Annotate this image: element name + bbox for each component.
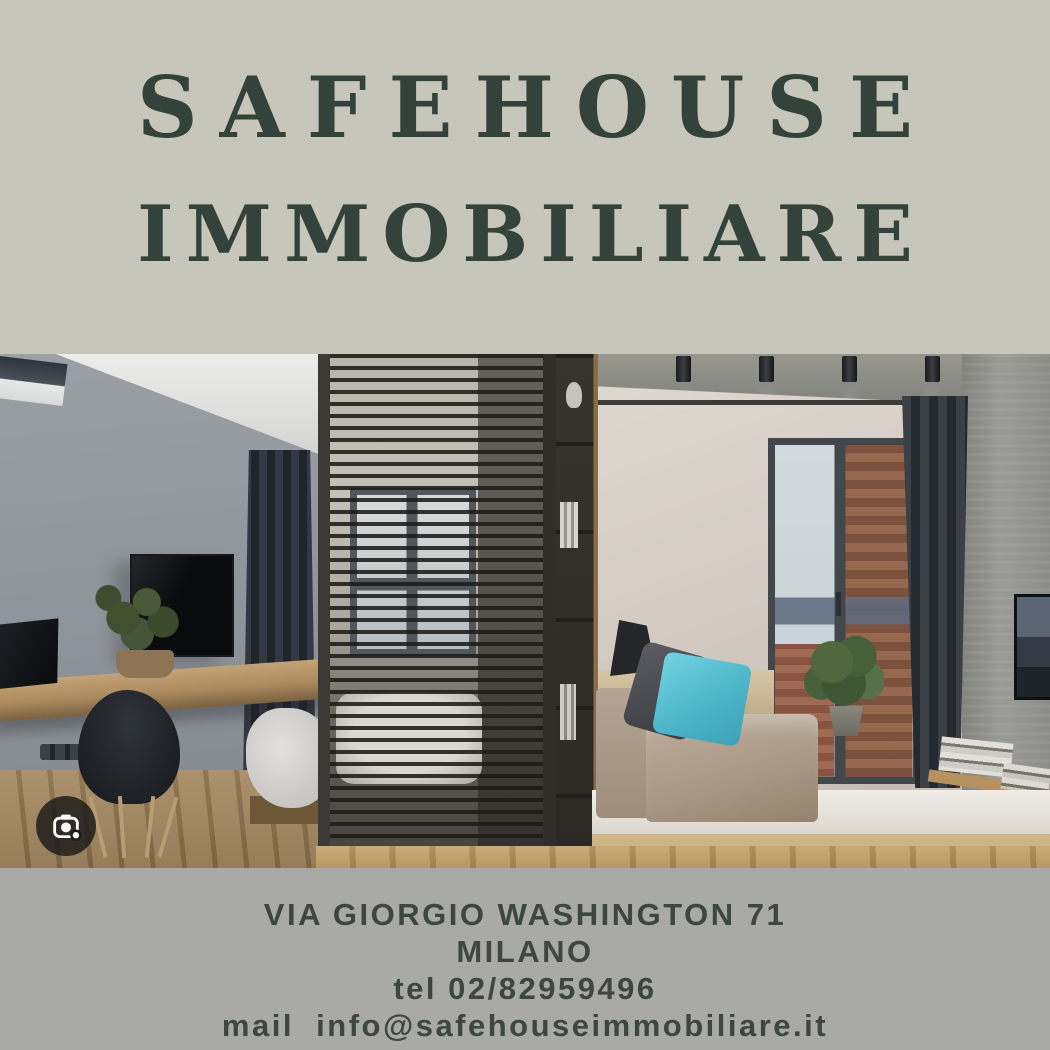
flyer-header: SAFEHOUSE IMMOBILIARE — [0, 0, 1050, 354]
shelf-books — [560, 502, 578, 548]
google-lens-button[interactable] — [36, 796, 96, 856]
apartment-photo — [0, 354, 1050, 868]
laptop — [0, 618, 58, 689]
address-line: VIA GIORGIO WASHINGTON 71 — [0, 896, 1050, 933]
camera-lens-icon — [49, 809, 83, 843]
city-line: MILANO — [0, 933, 1050, 970]
brand-title-line1: SAFEHOUSE — [0, 66, 1050, 150]
contact-info: VIA GIORGIO WASHINGTON 71 MILANO tel 02/… — [0, 868, 1050, 1050]
email-line: mail info@safehouseimmobiliare.it — [0, 1007, 1050, 1044]
plant-pot — [116, 650, 174, 678]
shelf-vase — [566, 382, 582, 408]
shelf-books — [560, 684, 576, 740]
wood-floor — [316, 846, 1050, 868]
air-conditioner — [0, 356, 67, 406]
ceiling-spotlight — [759, 356, 774, 382]
ceiling-spotlight — [842, 356, 857, 382]
wall-tv-right — [1014, 594, 1050, 700]
ceiling-spotlight — [925, 356, 940, 382]
phone-line: tel 02/82959496 — [0, 970, 1050, 1007]
curtain-rod — [598, 400, 932, 405]
turquoise-pillow — [652, 651, 753, 747]
balcony-plant — [804, 634, 884, 714]
partition-post-left — [318, 354, 330, 856]
ceiling-spotlight — [676, 356, 691, 382]
brand-title-line2: IMMOBILIARE — [0, 196, 1050, 274]
wood-slat-partition — [318, 354, 556, 856]
real-estate-flyer: SAFEHOUSE IMMOBILIARE — [0, 0, 1050, 1050]
door-handle — [836, 592, 841, 616]
partition-post-right — [543, 354, 556, 856]
